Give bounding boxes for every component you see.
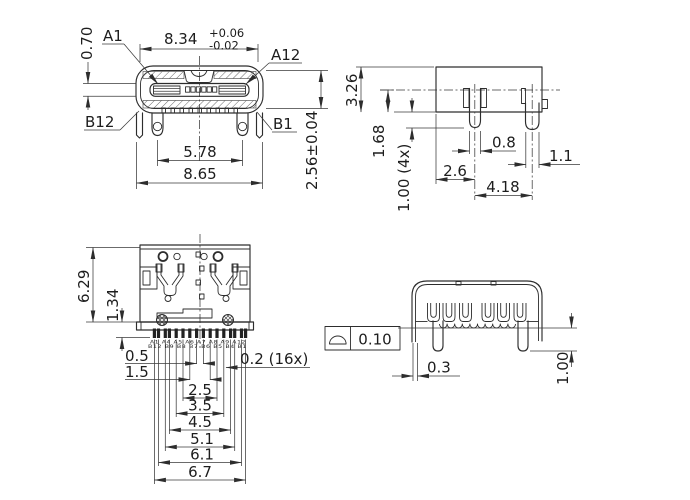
front-center-contacts <box>186 87 217 92</box>
front-shell-width-dim: 8.34 <box>164 30 197 48</box>
front-pad-right <box>219 86 246 94</box>
side-height-dim: 3.26 <box>343 74 361 107</box>
front-label-b12: B12 <box>85 113 114 131</box>
surface-profile-icon <box>330 336 347 344</box>
front-peg-span-dim: 5.78 <box>183 143 216 161</box>
top-pitch-dim-6: 6.1 <box>190 446 214 464</box>
side-body <box>436 67 542 112</box>
side-pin-width-dim: 0.8 <box>492 134 516 152</box>
top-pitch-dim-7: 6.7 <box>188 463 212 481</box>
side-edge-to-pin-dim: 2.6 <box>443 162 467 180</box>
front-hatch-top-left <box>143 72 184 79</box>
front-holddown-left <box>137 113 143 138</box>
connector-technical-drawing: 0.70 8.34 +0.06 -0.02 A1 A12 B12 B1 5.78… <box>0 0 690 500</box>
front-shell-height-dim: 2.56±0.04 <box>303 111 321 190</box>
top-pin-width-dim: 0.2 (16x) <box>240 350 308 368</box>
side-holddown-width-dim: 1.1 <box>549 147 573 165</box>
top-pitch-dim-3: 3.5 <box>188 397 212 415</box>
gdt-tolerance-value: 0.10 <box>358 331 391 349</box>
top-pin-labels-row-b: B12 B9 B8 B7 B6 B5 B4 B1 <box>148 344 247 349</box>
front-shell-seam-inner <box>191 71 207 77</box>
top-pitch-dim-4: 4.5 <box>188 413 212 431</box>
top-pin-tail-dim: 1.34 <box>104 289 122 322</box>
top-peg-right <box>223 315 234 326</box>
front-shell-width-tol-lower: -0.02 <box>209 39 239 53</box>
top-pitch-dim-1: 1.5 <box>125 363 149 381</box>
rear-shell-inner <box>416 285 539 343</box>
front-label-a1: A1 <box>103 27 123 45</box>
side-pin-left <box>464 84 487 200</box>
side-leg-length-dim: 1.00 (4x) <box>395 144 413 212</box>
front-pad-left <box>154 86 181 94</box>
side-center-to-base-dim: 1.68 <box>370 125 388 158</box>
front-label-b1: B1 <box>273 115 293 133</box>
top-view: A1 A4 A5 A6 A7 A8 A9 A12 B12 B9 B8 B7 B6… <box>75 234 310 484</box>
front-hatch-bottom <box>143 101 256 109</box>
top-latch-right <box>210 264 238 296</box>
front-tongue-offset-dim: 0.70 <box>78 27 96 60</box>
side-pin-spacing-dim: 4.18 <box>486 178 519 196</box>
side-view: 3.26 1.68 1.00 (4x) 0.8 1.1 2.6 4.18 <box>343 67 580 212</box>
top-latch-left <box>156 264 184 296</box>
rear-standoff-dim: 1.00 <box>554 352 572 385</box>
rear-view: 0.10 0.3 1.00 <box>325 281 577 385</box>
rear-peg-right <box>518 321 528 351</box>
top-body-depth-dim: 6.29 <box>75 270 93 303</box>
front-hatch-top-right <box>214 72 256 79</box>
front-view: 0.70 8.34 +0.06 -0.02 A1 A12 B12 B1 5.78… <box>78 26 328 190</box>
drawing-sheet: 0.70 8.34 +0.06 -0.02 A1 A12 B12 B1 5.78… <box>0 0 690 500</box>
rear-contact-comb <box>428 303 527 328</box>
front-label-a12: A12 <box>271 46 300 64</box>
gdt-frame: 0.10 <box>325 327 400 351</box>
side-tab <box>542 100 548 109</box>
rear-peg-left <box>433 321 443 351</box>
rear-shell-thickness-dim: 0.3 <box>427 359 451 377</box>
front-holddown-right <box>257 113 263 138</box>
top-body <box>140 245 250 322</box>
top-peg-left <box>157 315 168 326</box>
side-holddown-right <box>522 84 540 200</box>
top-holes <box>159 252 223 261</box>
front-overall-width-dim: 8.65 <box>183 165 216 183</box>
